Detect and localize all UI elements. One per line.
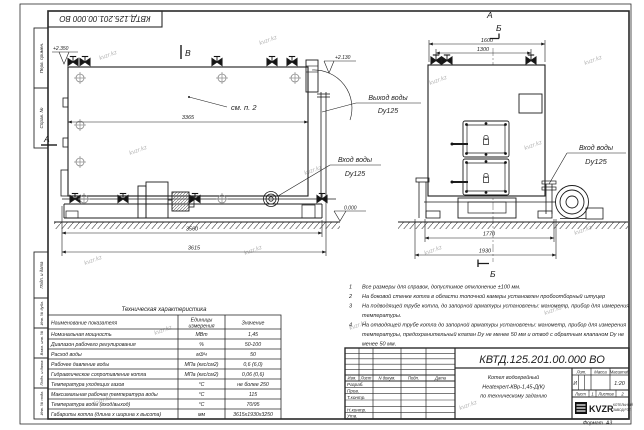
svg-text:1,45: 1,45: [248, 332, 258, 338]
format-word: Формат: [583, 421, 603, 427]
dim-3615: 3615: [188, 246, 201, 252]
note-text: На подводящей трубе котла, до запорной а…: [362, 303, 629, 310]
svg-text:50: 50: [250, 352, 256, 358]
svg-text:м3/ч: м3/ч: [196, 352, 207, 358]
svg-text:0,6 (6,0): 0,6 (6,0): [243, 362, 263, 368]
end-section-label-b: Б: [496, 23, 502, 33]
svg-text:Габариты котла (длина х ширина: Габариты котла (длина х ширина х высота): [51, 412, 161, 418]
drawing-canvas: Перв. примен. Справ. № Подп. и дата Инв.…: [0, 0, 644, 430]
svg-text:Heatexpert-КВр-1,45-Д(К): Heatexpert-КВр-1,45-Д(К): [482, 385, 545, 391]
svg-text:0,06 (0,6): 0,06 (0,6): [242, 372, 264, 378]
svg-text:N докум.: N докум.: [379, 376, 396, 381]
dim-1770: 1770: [483, 232, 496, 238]
title-scale-value: 1:20: [614, 381, 626, 387]
svg-text:°С: °С: [199, 402, 205, 408]
svg-text:kvzr.kz: kvzr.kz: [244, 245, 263, 257]
note-num: 3: [349, 304, 353, 310]
end-section-label-a: А: [486, 10, 493, 20]
note-num: 2: [348, 294, 352, 300]
svg-text:Дата: Дата: [434, 376, 447, 381]
title-doc-number: КВТД.125.201.00.000 ВО: [479, 354, 605, 366]
svg-text:kvzr.kz: kvzr.kz: [459, 400, 478, 412]
note-text: Все размеры для справок, допустимое откл…: [362, 285, 521, 291]
frame-stamp-column: Перв. примен. Справ. № Подп. и дата Инв.…: [34, 28, 48, 419]
svg-text:Н.контр.: Н.контр.: [347, 407, 366, 412]
svg-text:Гидравлическое сопротивление к: Гидравлическое сопротивление котла: [51, 372, 146, 378]
svg-text:Масштаб: Масштаб: [610, 369, 630, 374]
title-lit-value: И: [573, 381, 577, 387]
svg-text:Номинальная мощность: Номинальная мощность: [51, 332, 112, 338]
svg-text:kvzr.kz: kvzr.kz: [84, 255, 103, 267]
svg-text:Температура воды (вход/выход): Температура воды (вход/выход): [51, 402, 130, 408]
dim-3365: 3365: [182, 115, 195, 121]
svg-text:115: 115: [249, 392, 257, 398]
svg-text:Лит.: Лит.: [576, 369, 587, 374]
note-text: На боковой стенке котла в области топочн…: [362, 293, 605, 300]
stamp-label-inv-podl: Инв. № подл.: [39, 391, 44, 416]
svg-text:Изм.: Изм.: [348, 376, 357, 381]
format-label: Формат А3: [583, 421, 612, 427]
svg-text:Лист: Лист: [574, 391, 586, 396]
elev-zero-label: 0.000: [344, 206, 357, 212]
tech-table-rows: Номинальная мощностьМВт1,45 Диапазон раб…: [50, 332, 273, 418]
svg-text:70/95: 70/95: [247, 402, 260, 408]
end-section-label-b2: Б: [490, 269, 496, 279]
dim-1930: 1930: [479, 249, 492, 255]
outlet-water-label: Выход воды: [368, 94, 408, 102]
rotated-doc-number: КВТД.125.201.00.000 ВО: [59, 14, 150, 23]
svg-text:kvzr.kz: kvzr.kz: [99, 50, 118, 62]
format-value: А3: [605, 421, 612, 427]
stamp-label-inv-dubl: Инв. № дубл.: [39, 301, 44, 326]
rotated-doc-number-box: КВТД.125.201.00.000 ВО: [48, 11, 162, 27]
outlet-dn-label: Dy125: [378, 108, 398, 115]
svg-text:°С: °С: [199, 382, 205, 388]
end-inlet-water-label: Вход воды: [579, 144, 614, 152]
svg-text:kvzr.kz: kvzr.kz: [154, 325, 173, 337]
svg-text:Пров.: Пров.: [347, 388, 359, 393]
kvzr-logo: KVZR КОТЕЛЬНЫЙ ЗАВОД РЭП: [575, 402, 634, 414]
section-label-a: А: [43, 134, 50, 144]
svg-text:Листов: Листов: [597, 391, 614, 396]
stamp-label-podp2: Подп. и дата: [39, 360, 44, 386]
inlet-water-label: Вход воды: [338, 156, 373, 164]
notes-block: 1Все размеры для справок, допустимое отк…: [348, 285, 629, 348]
note-ref-label: см. п. 2: [231, 103, 257, 112]
logo-text: KVZR: [589, 404, 614, 414]
svg-text:МПа (кгс/см2): МПа (кгс/см2): [185, 362, 219, 368]
drawing-sheet: Перв. примен. Справ. № Подп. и дата Инв.…: [0, 0, 644, 430]
stamp-label-vzam: Взам. инв. №: [39, 330, 44, 355]
svg-text:Котел водогрейный: Котел водогрейный: [488, 374, 539, 381]
svg-text:по техническому заданию: по техническому заданию: [480, 394, 547, 400]
end-view-blower: [556, 186, 604, 220]
title-col-headers: Изм. Лист N докум. Подп. Дата: [348, 376, 447, 381]
title-right-headers: Лит. Масса Масштаб: [576, 369, 630, 374]
svg-text:Утв.: Утв.: [347, 414, 357, 419]
logo-sub2: ЗАВОД РЭП: [613, 408, 632, 412]
end-inlet-dn-label: Dy125: [585, 157, 608, 166]
svg-text:Рабочее давление воды: Рабочее давление воды: [51, 362, 109, 368]
tech-col-value: Значение: [242, 321, 265, 327]
svg-text:Диапазон рабочего регулировани: Диапазон рабочего регулирования: [50, 342, 136, 348]
note-text: температуры, предохранительный клапан Dу…: [362, 331, 624, 338]
elev-top-label: +2.350: [53, 46, 69, 52]
stamp-label-perv: Перв. примен.: [39, 43, 44, 74]
svg-text:Разраб.: Разраб.: [347, 382, 364, 387]
dim-1300: 1300: [477, 47, 490, 53]
elev-outlet-label: +2.130: [335, 55, 351, 61]
boiler-front-view: [54, 57, 352, 230]
title-sheet-row: Лист 1 Листов 2: [574, 391, 624, 396]
svg-text:Расход воды: Расход воды: [51, 352, 82, 358]
svg-text:kvzr.kz: kvzr.kz: [584, 55, 603, 67]
svg-text:Подп.: Подп.: [408, 376, 419, 381]
svg-text:МПа (кгс/см2): МПа (кгс/см2): [185, 372, 219, 378]
svg-text:3615х1930х3250: 3615х1930х3250: [233, 412, 273, 418]
dim-3560: 3560: [186, 227, 199, 233]
svg-text:не более 250: не более 250: [237, 382, 269, 388]
note-num: 1: [349, 285, 352, 291]
svg-text:50-100: 50-100: [245, 342, 261, 348]
inlet-dn-label: Dy125: [345, 171, 365, 178]
end-view-valves: [431, 55, 536, 64]
note-text: температуры.: [362, 313, 401, 319]
tech-table-title: Техническая характеристика: [122, 307, 208, 313]
svg-text:Т.контр.: Т.контр.: [347, 395, 366, 400]
svg-text:Лист: Лист: [360, 376, 372, 381]
title-name-cell: Котел водогрейный Heatexpert-КВр-1,45-Д(…: [480, 374, 547, 400]
title-block: КВТД.125.201.00.000 ВО Изм. Лист N докум…: [345, 348, 634, 419]
svg-text:%: %: [199, 342, 204, 348]
tech-table: Техническая характеристика Наименование …: [48, 307, 281, 419]
tech-col-units-2: измерения: [189, 324, 215, 330]
tech-col-name: Наименование показателя: [51, 321, 117, 327]
svg-text:2: 2: [620, 391, 624, 396]
logo-sub1: КОТЕЛЬНЫЙ: [613, 403, 634, 407]
svg-text:kvzr.kz: kvzr.kz: [259, 35, 278, 47]
svg-text:Масса: Масса: [594, 369, 607, 374]
svg-text:°С: °С: [199, 392, 205, 398]
svg-text:мм: мм: [198, 412, 206, 418]
stamp-label-podp1: Подп. и дата: [39, 261, 44, 289]
stamp-label-sprav: Справ. №: [39, 108, 44, 129]
note-text: менее 50 мм.: [362, 342, 396, 348]
svg-text:Температура уходящих газов: Температура уходящих газов: [51, 382, 124, 388]
note-text: На отводящей трубе котла до запорной арм…: [362, 322, 626, 329]
section-label-b: В: [185, 48, 191, 58]
svg-text:МВт: МВт: [195, 332, 208, 338]
svg-text:1: 1: [591, 391, 593, 396]
